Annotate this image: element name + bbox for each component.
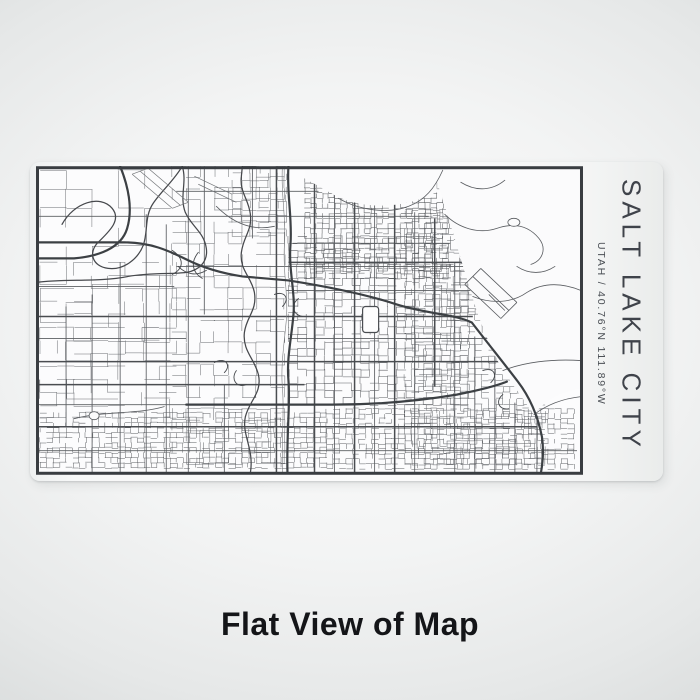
map-svg [36, 166, 583, 475]
city-name: SALT LAKE CITY [616, 179, 647, 452]
map-panel [36, 166, 583, 475]
bottle-wrap: SALT LAKE CITY UTAH / 40.76°N 111.89°W [30, 162, 663, 481]
caption: Flat View of Map [0, 606, 700, 643]
studio-backdrop: SALT LAKE CITY UTAH / 40.76°N 111.89°W F… [0, 0, 700, 700]
coordinates-column: UTAH / 40.76°N 111.89°W [591, 162, 611, 481]
city-name-column: SALT LAKE CITY [614, 162, 648, 481]
coordinates: UTAH / 40.76°N 111.89°W [595, 242, 607, 406]
